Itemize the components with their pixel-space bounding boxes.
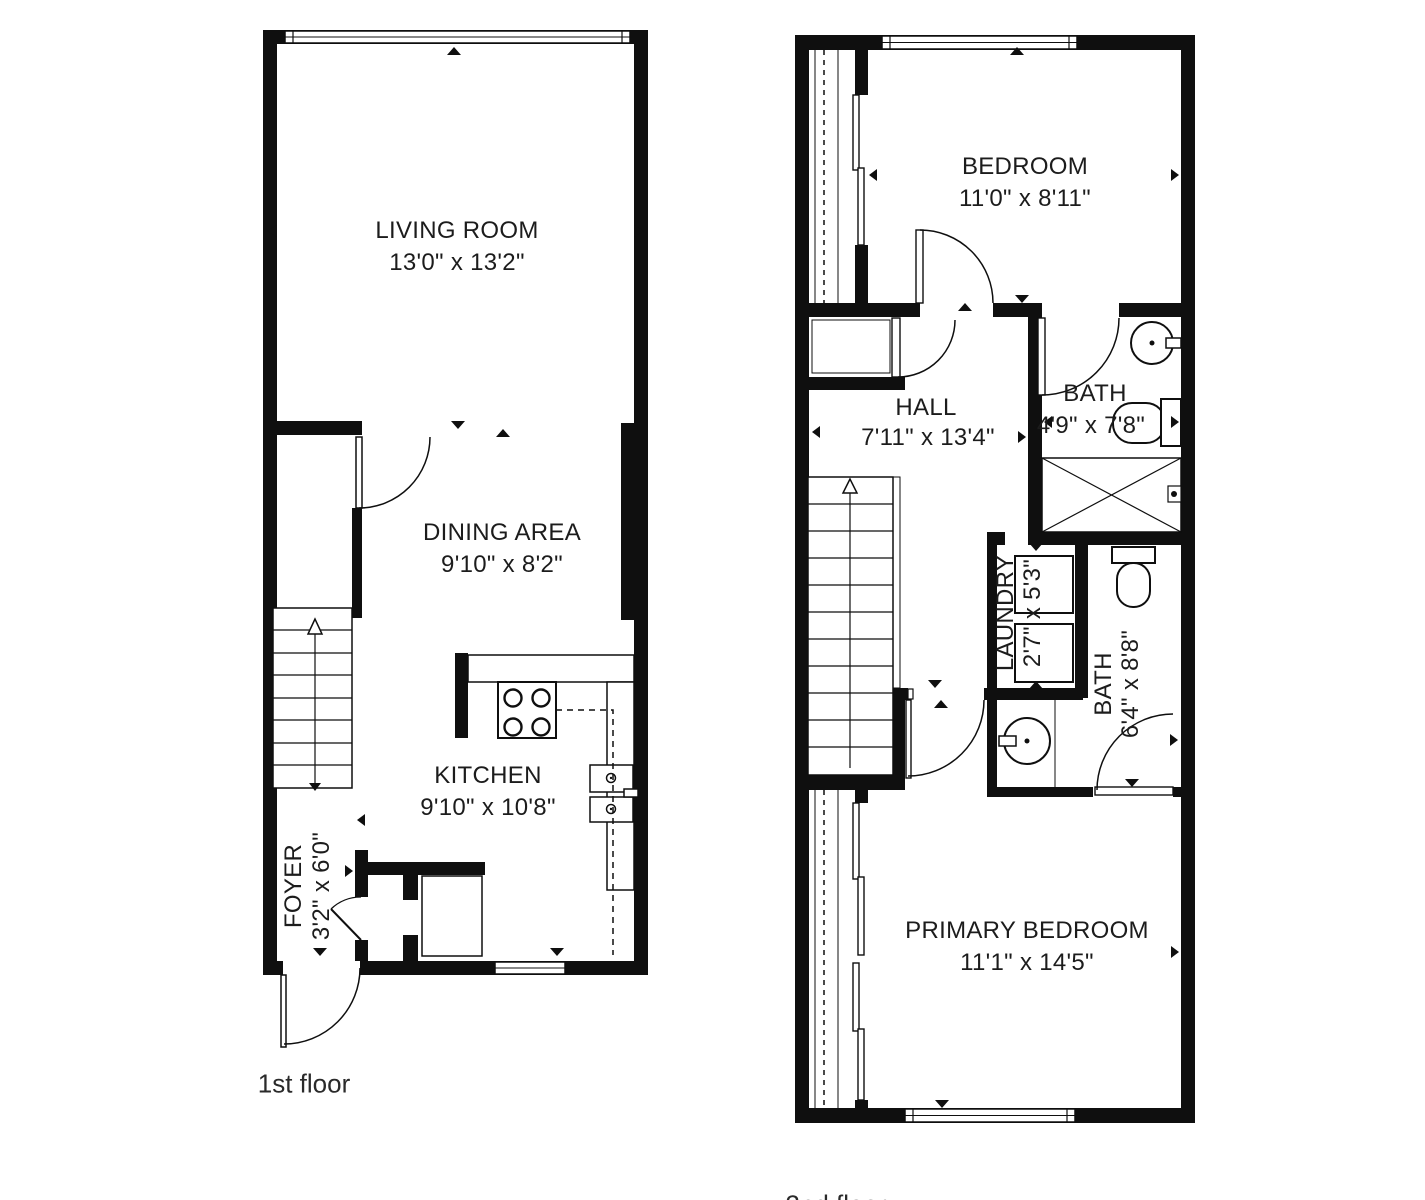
floorplan-canvas: LIVING ROOM 13'0" x 13'2" DINING AREA 9'… [0,0,1425,1200]
stove-icon [498,682,556,738]
bath-upper-dims: 4'9" x 7'8" [1037,414,1145,438]
primary-bedroom-dims: 11'1" x 14'5" [960,951,1094,975]
primary-bedroom-door [906,688,984,778]
stairs-floor2 [808,477,900,775]
dining-area-name: DINING AREA [423,521,581,545]
stairs-floor1 [273,608,352,791]
kitchen-name: KITCHEN [434,764,541,788]
laundry-dims: 2'7" x 5'3" [1021,559,1045,667]
living-dining-door [356,437,430,508]
shower-icon [1042,458,1181,532]
primary-closet-strip [815,790,864,1108]
entry-door [281,961,360,1047]
bath-upper-sink-icon [1131,322,1181,364]
primary-bedroom-name: PRIMARY BEDROOM [905,919,1149,943]
utility-closet-appliance [422,876,482,956]
floor2-label: 2nd floor [785,1190,886,1200]
bath-upper-name: BATH [1063,382,1126,406]
bedroom-name: BEDROOM [962,155,1088,179]
bath-lower-dims: 6'4" x 8'8" [1119,630,1143,738]
bath-lower-toilet-icon [1112,547,1155,607]
bath-lower-name: BATH [1092,652,1116,715]
bath-lower-sink-icon [999,718,1050,764]
living-room-name: LIVING ROOM [375,219,538,243]
living-room-dims: 13'0" x 13'2" [389,251,525,275]
floor1-label: 1st floor [258,1069,351,1100]
counter-dashed-line [556,710,613,955]
floor1-window-top [285,31,630,43]
hall-dims: 7'11" x 13'4" [861,426,995,450]
laundry-name: LAUNDRY [994,555,1018,671]
floor2-window-bottom [905,1109,1075,1122]
hall-closet [812,318,955,377]
foyer-name: FOYER [282,844,306,928]
foyer-dims: 3'2" x 6'0" [310,832,334,940]
bedroom-door [916,230,993,303]
floorplan-drawing [0,0,1425,1200]
bedroom-dims: 11'0" x 8'11" [959,187,1091,211]
hall-name: HALL [895,396,956,420]
kitchen-dims: 9'10" x 10'8" [420,796,556,820]
foyer-kitchen-door [331,897,361,940]
floor1-window-bottom [495,962,565,974]
floor2-window-top [882,36,1077,49]
dining-area-dims: 9'10" x 8'2" [441,553,563,577]
